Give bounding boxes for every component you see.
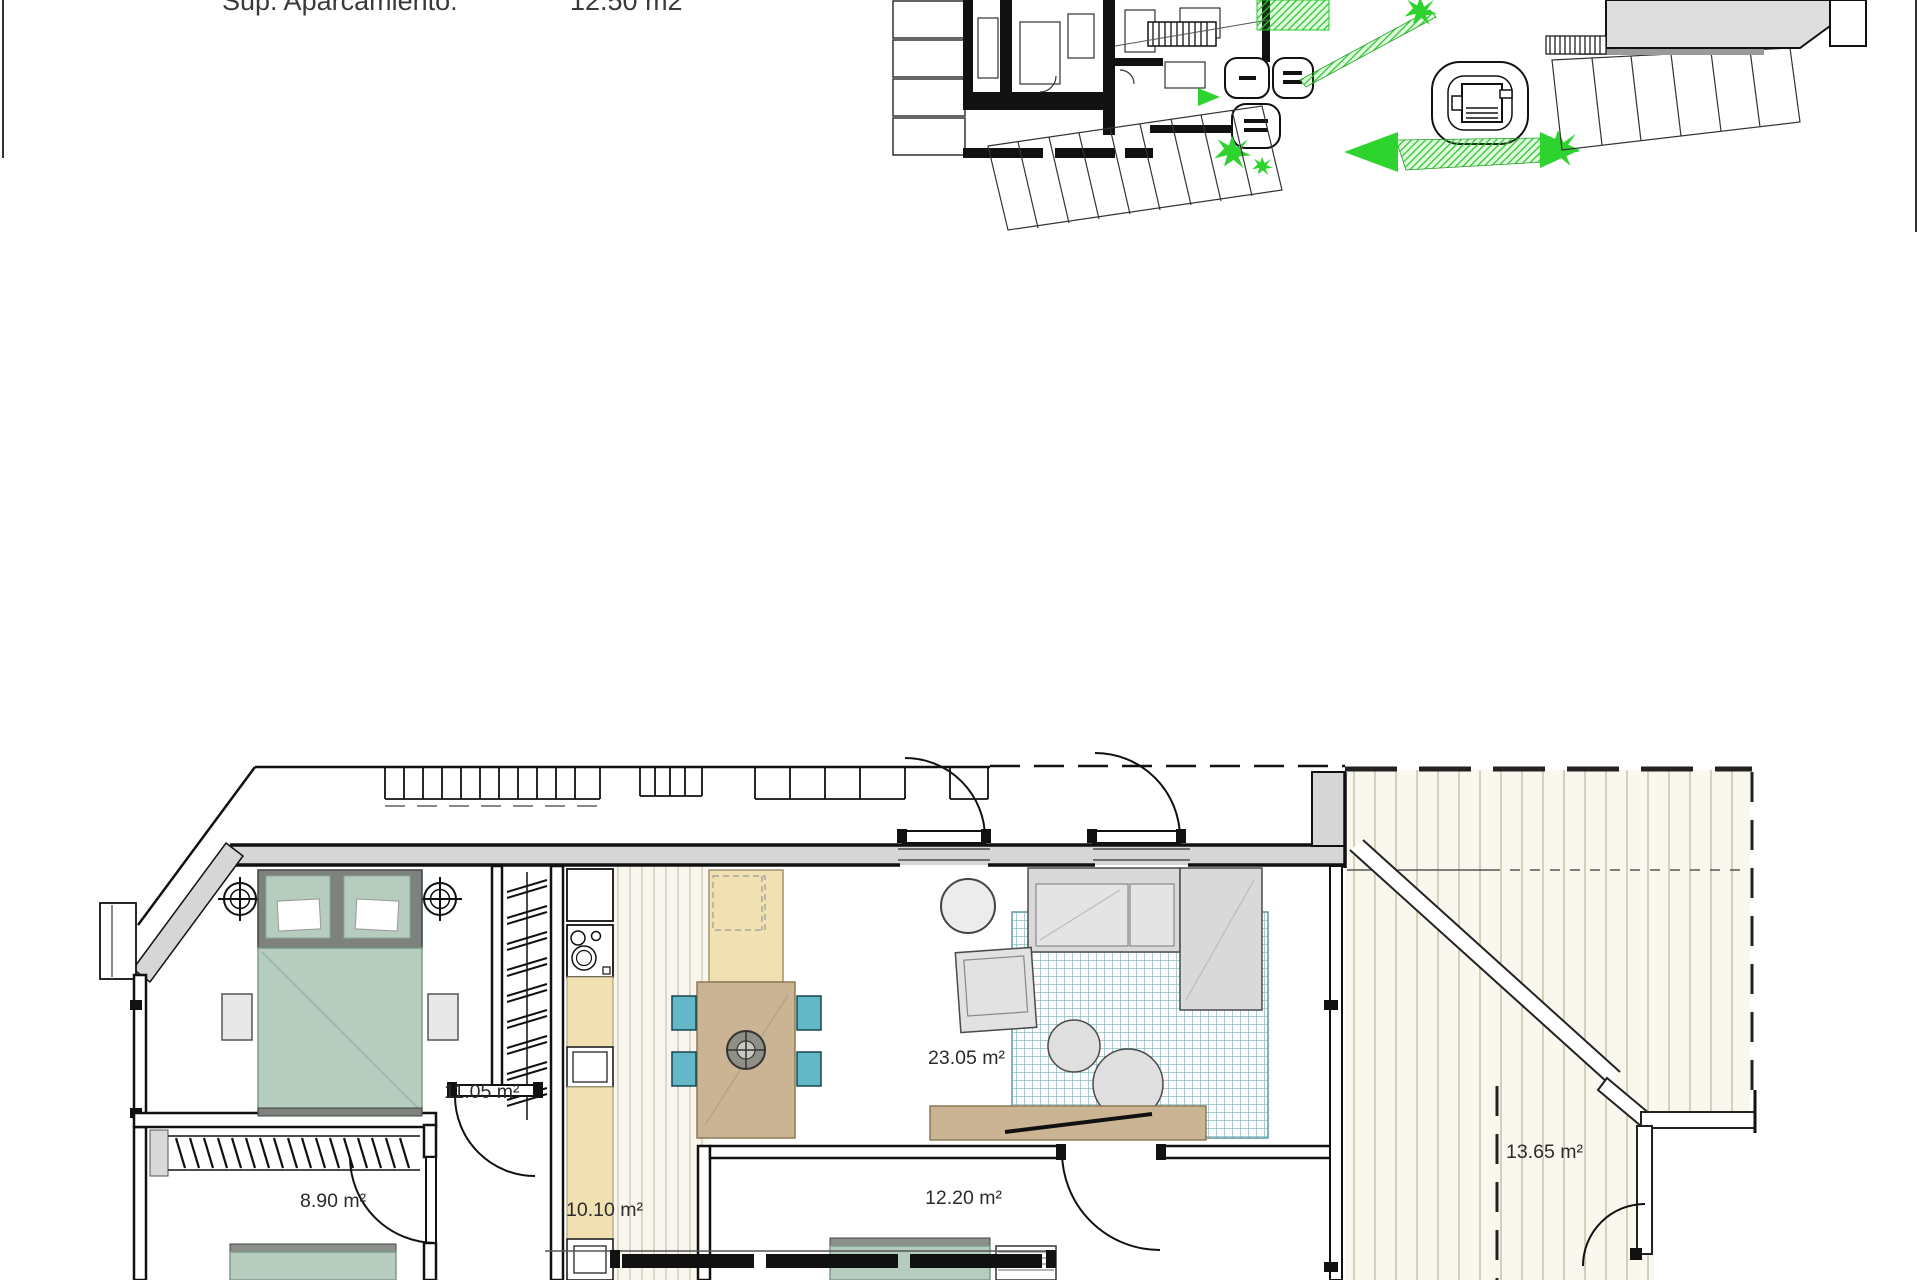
parking-fan-right [1552, 48, 1800, 150]
room-label-bedroom-1: 11.05 m² [444, 1081, 520, 1103]
nightstand [222, 994, 252, 1040]
nightstand [428, 994, 458, 1040]
tree-icon [1252, 157, 1273, 175]
playground [1432, 62, 1528, 144]
island-counter [709, 870, 783, 982]
green-path [1396, 138, 1544, 170]
tv-console [930, 1106, 1206, 1140]
site-plan [893, 0, 1866, 230]
oven [567, 1239, 613, 1280]
bedroom-2 [150, 1130, 420, 1280]
closet-cap [150, 1130, 168, 1176]
bed-frame [230, 1244, 396, 1252]
architectural-drawing: Sup. Aparcamiento: 12.50 m2 [0, 0, 1920, 1280]
residential-building [963, 0, 1270, 158]
green-arrow-icon [1344, 132, 1398, 172]
bed [230, 1252, 396, 1280]
door-arc [455, 1096, 535, 1176]
living-room [930, 868, 1268, 1140]
ceiling-light-icon [218, 877, 262, 921]
door-arc [1062, 1152, 1160, 1250]
door-leaf [903, 831, 985, 843]
cooktop [567, 925, 613, 977]
room-label-terrace: 13.65 m² [1506, 1141, 1583, 1163]
header: Sup. Aparcamiento: 12.50 m2 [222, 0, 683, 16]
green-arrow-icon [1198, 88, 1220, 106]
room-label-hallway: 10.10 m² [566, 1199, 643, 1221]
gray-building [1546, 0, 1866, 55]
double-bed [258, 870, 422, 1116]
door-hinge [1630, 1248, 1642, 1260]
pillow [355, 899, 399, 931]
diagonal-wall [133, 843, 243, 982]
drawing-canvas: Sup. Aparcamiento: 12.50 m2 [0, 0, 1920, 1280]
pillow [277, 899, 321, 931]
surface-value: 12.50 m2 [570, 0, 683, 16]
sidewalk-comb [1546, 36, 1606, 54]
sink [567, 1047, 613, 1087]
terrace-deck [1345, 769, 1755, 1280]
door-arc [905, 758, 985, 838]
door-leaf [1093, 831, 1180, 843]
pouf [1048, 1020, 1100, 1072]
parking-stalls-left [893, 1, 965, 155]
wardrobe-hangers [168, 1136, 420, 1170]
main-floor-plan: 11.05 m² 8.90 m² 10.10 m² 23.05 m² 12.20… [100, 753, 1755, 1280]
room-label-living-dining: 23.05 m² [928, 1047, 1005, 1069]
room-label-bedroom-3: 12.20 m² [925, 1187, 1002, 1209]
armchair [955, 947, 1036, 1032]
green-plot [1257, 0, 1329, 30]
surface-label: Sup. Aparcamiento: [222, 0, 458, 16]
fridge [567, 869, 613, 921]
ceiling-light-icon [418, 877, 462, 921]
site-furniture [978, 8, 1220, 88]
bed-frame [830, 1238, 990, 1246]
window-sill [100, 903, 136, 979]
pendant-lamp-icon [727, 1031, 765, 1069]
counter [567, 977, 613, 1047]
bedroom-1 [218, 870, 462, 1116]
stairs [1148, 22, 1216, 46]
room-label-bedroom-2: 8.90 m² [300, 1190, 367, 1212]
side-table [941, 879, 995, 933]
door-leaf [426, 1157, 436, 1243]
